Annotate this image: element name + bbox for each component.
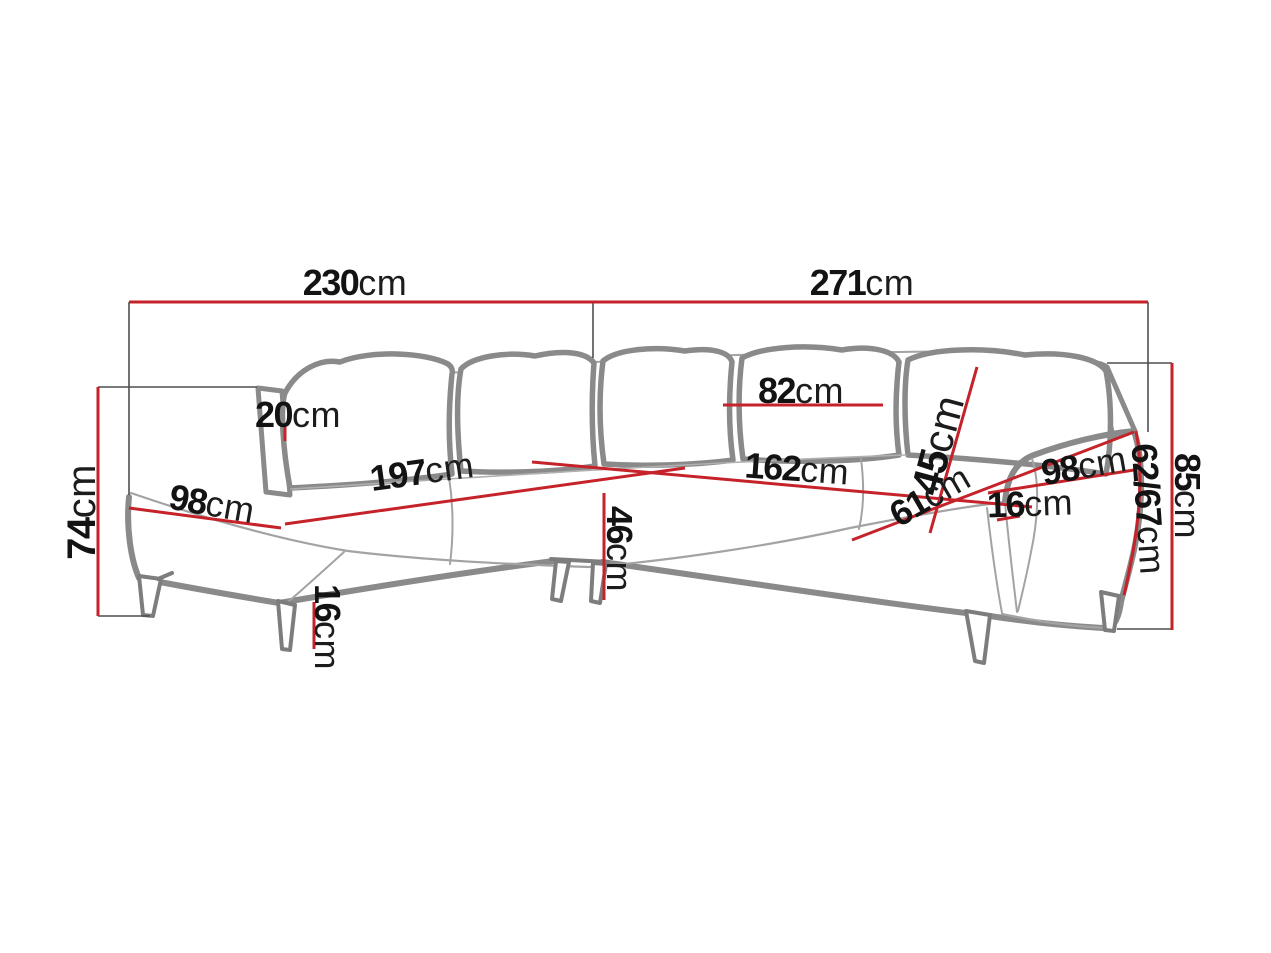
- leg-front-left: [139, 573, 172, 616]
- unit-armrest-length: cm: [1074, 438, 1129, 487]
- label-seat-height: 46cm: [601, 506, 637, 592]
- leg-right: [966, 611, 990, 663]
- value-overall-width-left: 230: [303, 262, 359, 303]
- label-seat-width-right: 162cm: [744, 447, 851, 490]
- unit-overall-height-right: cm: [1167, 490, 1208, 539]
- unit-seat-height: cm: [599, 543, 640, 592]
- seat-front-rim: [131, 493, 1005, 567]
- value-seat-width-right: 162: [743, 444, 801, 489]
- value-seat-height: 46: [599, 506, 640, 543]
- value-armrest-top-width: 16: [986, 483, 1024, 525]
- value-overall-height-right: 85: [1167, 453, 1208, 490]
- unit-leg-height: cm: [307, 621, 348, 670]
- back-cushion-2: [458, 352, 595, 472]
- armrest-roll-inner: [1018, 459, 1037, 611]
- label-armrest-top-width: 16cm: [986, 485, 1073, 524]
- label-overall-height-right: 85cm: [1169, 453, 1205, 539]
- value-armrest-height: 62/67: [1123, 442, 1170, 527]
- unit-seat-width-right: cm: [799, 448, 851, 492]
- label-overall-width-left: 230cm: [303, 265, 408, 301]
- unit-overall-width-right: cm: [865, 262, 914, 303]
- label-backrest-top-offset: 20cm: [255, 397, 341, 433]
- value-overall-width-right: 271: [810, 262, 866, 303]
- label-armrest-height: 62/67cm: [1125, 442, 1170, 576]
- seat-seam-left: [449, 477, 453, 564]
- unit-seat-width-left: cm: [422, 444, 476, 491]
- unit-armrest-top-width: cm: [1023, 482, 1073, 525]
- label-leg-height: 16cm: [309, 584, 345, 670]
- leg-arm: [1101, 592, 1119, 631]
- unit-back-cushion-width: cm: [795, 370, 844, 411]
- value-leg-height: 16: [307, 584, 348, 621]
- label-back-cushion-width: 82cm: [758, 373, 844, 409]
- back-cushion-3: [600, 349, 733, 466]
- label-overall-width-right: 271cm: [810, 265, 915, 301]
- label-backrest-height-left: 74cm: [62, 464, 102, 560]
- leg-front-mid: [278, 601, 295, 650]
- value-back-cushion-width: 82: [758, 370, 795, 411]
- sofa-dimension-diagram: 230cm 271cm 74cm 20cm 98cm 197cm 46cm 16…: [0, 0, 1271, 953]
- seat-seam-right: [859, 459, 863, 529]
- value-backrest-top-offset: 20: [255, 394, 292, 435]
- unit-overall-width-left: cm: [358, 262, 407, 303]
- unit-backrest-top-offset: cm: [292, 394, 341, 435]
- value-seat-width-left: 197: [367, 451, 428, 499]
- unit-chaise-depth: cm: [203, 482, 258, 531]
- unit-backrest-height-left: cm: [60, 464, 104, 518]
- value-backrest-height-left: 74: [60, 518, 104, 560]
